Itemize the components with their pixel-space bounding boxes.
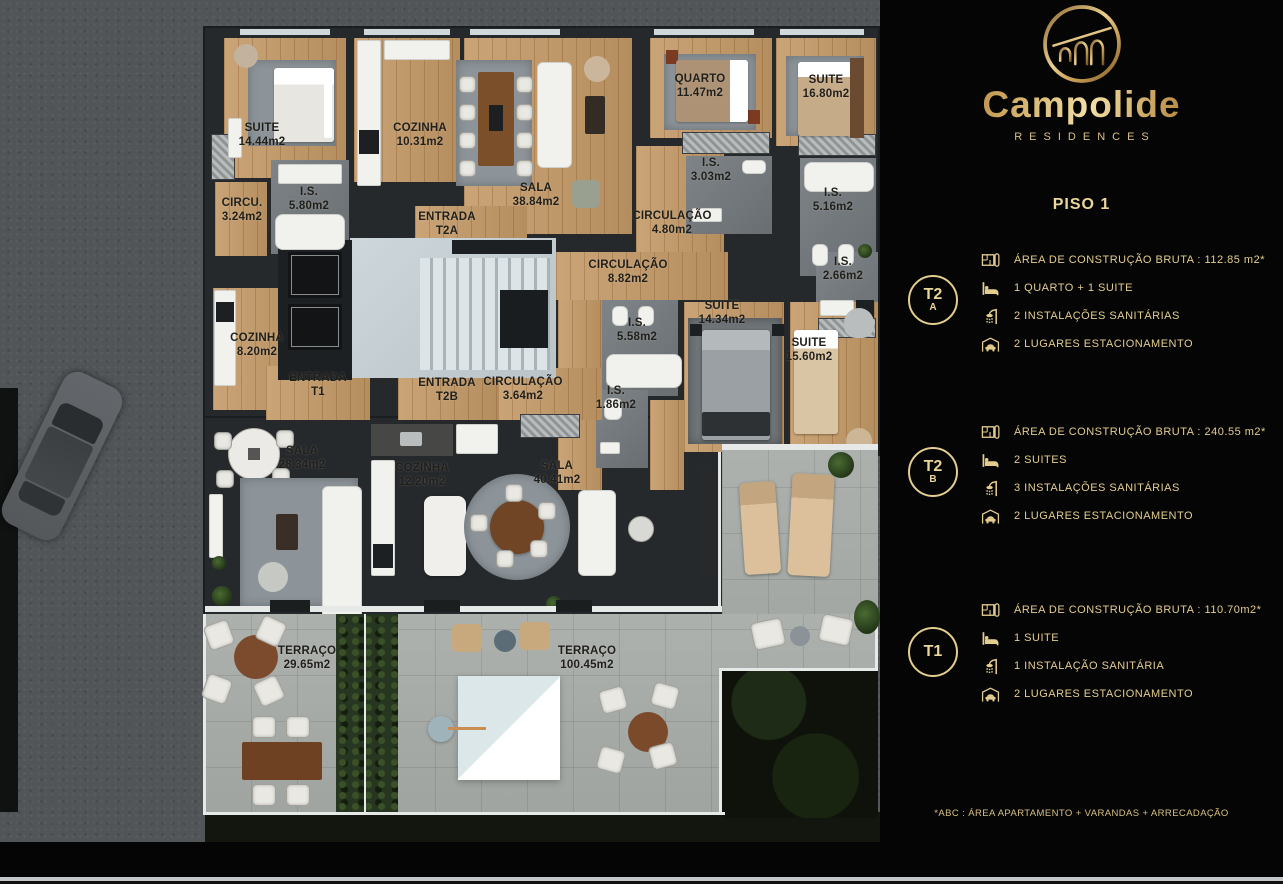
room-name: TERRAÇO — [558, 645, 616, 657]
room-label: SALA28.34m2 — [279, 445, 326, 473]
spec-row: 2 LUGARES ESTACIONAMENTO — [980, 330, 1280, 358]
room-area: T1 — [311, 386, 325, 398]
room-label: I.S.2.66m2 — [823, 256, 863, 284]
bed-icon — [980, 628, 1000, 648]
room-name: I.S. — [824, 187, 842, 199]
badge-line1: T1 — [924, 644, 943, 660]
spec-text: 2 LUGARES ESTACIONAMENTO — [1014, 510, 1193, 522]
floorplan-icon — [980, 600, 1000, 620]
spec-text: 2 SUITES — [1014, 454, 1067, 466]
room-name: CIRCULAÇÃO — [588, 259, 667, 271]
room-label: CIRCU.3.24m2 — [222, 197, 263, 225]
room-area: 38.84m2 — [513, 196, 560, 208]
bathtub — [275, 214, 345, 250]
badge-line1: T2 — [924, 459, 943, 475]
room-name: TERRAÇO — [278, 645, 336, 657]
badge-line2: B — [929, 475, 936, 485]
chair — [459, 76, 476, 93]
bed-pillows — [324, 72, 332, 138]
room-area: 29.65m2 — [284, 659, 331, 671]
spec-text: 1 INSTALAÇÃO SANITÁRIA — [1014, 660, 1164, 672]
room-name: QUARTO — [675, 73, 726, 85]
room-label: I.S.1.86m2 — [596, 385, 636, 413]
tv-console — [700, 470, 716, 574]
chair — [286, 784, 310, 806]
room-name: I.S. — [628, 317, 646, 329]
room-label: TERRAÇO29.65m2 — [278, 645, 336, 673]
room-name: SUITE — [245, 122, 280, 134]
doormat — [424, 600, 460, 612]
unit-badge-t1: T1 — [908, 627, 958, 677]
armchair — [258, 562, 288, 592]
railing — [203, 614, 206, 814]
window-strip — [470, 29, 560, 35]
spec-row: ÁREA DE CONSTRUÇÃO BRUTA : 112.85 m2* — [980, 246, 1280, 274]
armchair — [572, 180, 600, 208]
room-suite-1434-entry — [650, 400, 684, 490]
sun-lounger — [739, 481, 781, 575]
plant — [828, 452, 854, 478]
kitchen-island — [424, 496, 466, 576]
room-label: COZINHA10.31m2 — [393, 122, 447, 150]
footnote: *ABC : ÁREA APARTAMENTO + VARANDAS + ARR… — [880, 808, 1283, 819]
room-name: SALA — [541, 460, 573, 472]
chair — [459, 160, 476, 177]
hedge — [336, 614, 398, 814]
dining-table — [242, 742, 322, 780]
glass-divider — [364, 614, 366, 814]
room-label: CIRCULAÇÃO4.80m2 — [632, 210, 711, 238]
brand-name: Campolide — [880, 84, 1283, 126]
street-curb — [0, 388, 18, 812]
spec-row: ÁREA DE CONSTRUÇÃO BRUTA : 240.55 m2* — [980, 418, 1280, 446]
shower-icon — [980, 306, 1000, 326]
bed-throw — [702, 412, 770, 436]
room-name: SUITE — [792, 337, 827, 349]
elevator-1 — [288, 252, 342, 298]
armchair — [452, 624, 482, 652]
room-area: T2A — [436, 225, 458, 237]
room-label: I.S.5.80m2 — [289, 186, 329, 214]
garden — [722, 670, 878, 818]
badge-line2: A — [929, 303, 936, 313]
room-name: I.S. — [702, 157, 720, 169]
room-label: I.S.5.16m2 — [813, 187, 853, 215]
room-area: T2B — [436, 391, 458, 403]
floorplan-icon — [980, 422, 1000, 442]
window-strip — [364, 29, 450, 35]
chair — [459, 132, 476, 149]
wardrobe — [682, 132, 770, 154]
room-area: 3.64m2 — [503, 390, 543, 402]
kitchen-sink — [400, 432, 422, 446]
sink — [600, 442, 620, 454]
toilet — [742, 160, 766, 174]
fridge — [456, 424, 498, 454]
spec-row: 1 QUARTO + 1 SUITE — [980, 274, 1280, 302]
sun-lounger — [787, 473, 834, 577]
room-area: 3.03m2 — [691, 171, 731, 183]
unit-badge-t2b: T2 B — [908, 447, 958, 497]
window-strip — [780, 29, 864, 35]
chair — [470, 514, 488, 532]
room-name: CIRCU. — [222, 197, 263, 209]
unit-specs-t1: ÁREA DE CONSTRUÇÃO BRUTA : 110.70m2* 1 S… — [980, 596, 1280, 708]
spec-row: 2 LUGARES ESTACIONAMENTO — [980, 502, 1280, 530]
room-area: 8.20m2 — [237, 346, 277, 358]
bed-icon — [980, 450, 1000, 470]
table-centerpiece — [248, 448, 260, 460]
bed-icon — [980, 278, 1000, 298]
spec-row: 3 INSTALAÇÕES SANITÁRIAS — [980, 474, 1280, 502]
badge-line1: T2 — [924, 287, 943, 303]
chair — [214, 432, 232, 450]
spec-text: 1 SUITE — [1014, 632, 1059, 644]
room-name: I.S. — [834, 256, 852, 268]
spec-row: 1 INSTALAÇÃO SANITÁRIA — [980, 652, 1280, 680]
kitchen-counter — [384, 40, 450, 60]
spec-text: 1 QUARTO + 1 SUITE — [1014, 282, 1133, 294]
stove — [216, 302, 234, 322]
room-label: ENTRADAT2B — [418, 377, 476, 405]
round-chair — [584, 56, 610, 82]
railing — [203, 812, 725, 815]
sofa — [578, 490, 616, 576]
room-area: 14.44m2 — [239, 136, 286, 148]
room-area: 11.47m2 — [677, 87, 723, 99]
spec-row: 2 SUITES — [980, 446, 1280, 474]
floor-plan-render: SUITE14.44m2 COZINHA10.31m2 SALA38.84m2 … — [0, 0, 880, 884]
table-centerpiece — [489, 105, 503, 131]
plant — [854, 600, 880, 634]
side-table — [790, 626, 810, 646]
wardrobe — [520, 414, 580, 438]
room-name: SUITE — [705, 300, 740, 312]
plant — [212, 556, 226, 570]
room-label: I.S.3.03m2 — [691, 157, 731, 185]
stove — [359, 130, 379, 154]
room-label: I.S.5.58m2 — [617, 317, 657, 345]
railing — [719, 668, 878, 671]
chair — [516, 160, 533, 177]
doormat — [270, 600, 310, 612]
room-area: 28.34m2 — [279, 459, 326, 471]
bed-post — [748, 110, 760, 124]
room-area: 4.80m2 — [652, 224, 692, 236]
chair — [216, 470, 234, 488]
sofa — [537, 62, 572, 168]
shower-icon — [980, 478, 1000, 498]
room-name: COZINHA — [230, 332, 284, 344]
chair — [516, 132, 533, 149]
spec-text: ÁREA DE CONSTRUÇÃO BRUTA : 112.85 m2* — [1014, 254, 1265, 266]
chair — [459, 104, 476, 121]
armchair — [844, 308, 874, 338]
room-area: 5.58m2 — [617, 331, 657, 343]
room-label: SUITE15.60m2 — [786, 337, 833, 365]
room-label: SUITE14.44m2 — [239, 122, 286, 150]
room-area: 2.66m2 — [823, 270, 863, 282]
room-name: SUITE — [809, 74, 844, 86]
chair — [286, 716, 310, 738]
room-name: ENTRADA — [418, 377, 476, 389]
room-area: 1.86m2 — [596, 399, 636, 411]
coffee-table — [628, 516, 654, 542]
room-label: SUITE14.34m2 — [699, 300, 746, 328]
room-label: CIRCULAÇÃO3.64m2 — [483, 376, 562, 404]
plant — [212, 586, 232, 606]
stair-void — [500, 290, 548, 348]
railing — [719, 670, 722, 815]
room-name: ENTRADA — [289, 372, 347, 384]
chair — [496, 550, 514, 568]
room-label: COZINHA8.20m2 — [230, 332, 284, 360]
room-name: COZINHA — [393, 122, 447, 134]
room-area: 10.31m2 — [397, 136, 444, 148]
room-name: I.S. — [607, 385, 625, 397]
room-area: 15.60m2 — [786, 351, 833, 363]
shower-icon — [980, 656, 1000, 676]
umbrella-pole — [448, 727, 486, 730]
room-label: SALA40.41m2 — [534, 460, 581, 488]
window-strip — [654, 29, 754, 35]
kitchen-counter — [357, 40, 381, 186]
room-area: 8.82m2 — [608, 273, 648, 285]
glass-facade — [718, 452, 721, 608]
double-sink — [278, 164, 342, 184]
unit-specs-t2b: ÁREA DE CONSTRUÇÃO BRUTA : 240.55 m2* 2 … — [980, 418, 1280, 530]
car-garage-icon — [980, 334, 1000, 354]
unit-badge-t2a: T2 A — [908, 275, 958, 325]
room-area: 3.24m2 — [222, 211, 262, 223]
floorplan-icon — [980, 250, 1000, 270]
spec-text: ÁREA DE CONSTRUÇÃO BRUTA : 110.70m2* — [1014, 604, 1261, 616]
room-area: 100.45m2 — [560, 659, 613, 671]
room-name: I.S. — [300, 186, 318, 198]
spec-row: 2 LUGARES ESTACIONAMENTO — [980, 680, 1280, 708]
room-label: SALA38.84m2 — [513, 182, 560, 210]
spec-text: ÁREA DE CONSTRUÇÃO BRUTA : 240.55 m2* — [1014, 426, 1266, 438]
floor-title: PISO 1 — [880, 196, 1283, 214]
elevator-2 — [288, 304, 342, 350]
room-area: 12.20m2 — [399, 476, 446, 488]
room-label: COZINHA12.20m2 — [395, 462, 449, 490]
room-name: SALA — [520, 182, 552, 194]
car-garage-icon — [980, 684, 1000, 704]
brand-subtitle: RESIDENCES — [880, 131, 1283, 143]
chair — [505, 484, 523, 502]
room-name: ENTRADA — [418, 211, 476, 223]
room-name: SALA — [286, 445, 318, 457]
page: SUITE14.44m2 COZINHA10.31m2 SALA38.84m2 … — [0, 0, 1283, 884]
room-name: CIRCULAÇÃO — [632, 210, 711, 222]
chair — [516, 104, 533, 121]
spec-text: 2 INSTALAÇÕES SANITÁRIAS — [1014, 310, 1180, 322]
chair — [530, 540, 548, 558]
campolide-logo-icon — [1040, 2, 1124, 86]
room-area: 40.41m2 — [534, 474, 581, 486]
info-panel: Campolide RESIDENCES PISO 1 T2 A ÁREA DE… — [880, 0, 1283, 884]
room-label: TERRAÇO100.45m2 — [558, 645, 616, 673]
room-area: 5.16m2 — [813, 201, 853, 213]
spec-text: 2 LUGARES ESTACIONAMENTO — [1014, 338, 1193, 350]
room-name: COZINHA — [395, 462, 449, 474]
room-name: CIRCULAÇÃO — [483, 376, 562, 388]
spec-text: 3 INSTALAÇÕES SANITÁRIAS — [1014, 482, 1180, 494]
room-label: ENTRADAT1 — [289, 372, 347, 400]
room-label: QUARTO11.47m2 — [675, 73, 726, 101]
coffee-table — [585, 96, 605, 134]
room-area: 16.80m2 — [803, 88, 850, 100]
window-strip — [240, 29, 330, 35]
spec-text: 2 LUGARES ESTACIONAMENTO — [1014, 688, 1193, 700]
spec-row: 1 SUITE — [980, 624, 1280, 652]
spec-row: 2 INSTALAÇÕES SANITÁRIAS — [980, 302, 1280, 330]
bed-frame — [850, 58, 864, 138]
room-label: CIRCULAÇÃO8.82m2 — [588, 259, 667, 287]
bathtub — [606, 354, 682, 388]
car-garage-icon — [980, 506, 1000, 526]
chair — [516, 76, 533, 93]
nightstand — [772, 324, 784, 336]
armchair — [234, 44, 258, 68]
wardrobe — [798, 134, 876, 156]
coffee-table — [276, 514, 298, 550]
unit-specs-t2a: ÁREA DE CONSTRUÇÃO BRUTA : 112.85 m2* 1 … — [980, 246, 1280, 358]
armchair — [520, 622, 550, 650]
room-area: 5.80m2 — [289, 200, 329, 212]
chair — [252, 716, 276, 738]
doormat — [556, 600, 592, 612]
spec-row: ÁREA DE CONSTRUÇÃO BRUTA : 110.70m2* — [980, 596, 1280, 624]
room-area: 14.34m2 — [699, 314, 746, 326]
sofa — [322, 486, 362, 620]
chair — [538, 502, 556, 520]
room-label: SUITE16.80m2 — [803, 74, 850, 102]
chair — [252, 784, 276, 806]
room-label: ENTRADAT2A — [418, 211, 476, 239]
sideboard — [452, 240, 552, 254]
console — [209, 494, 223, 558]
side-table — [494, 630, 516, 652]
stove — [373, 544, 393, 568]
